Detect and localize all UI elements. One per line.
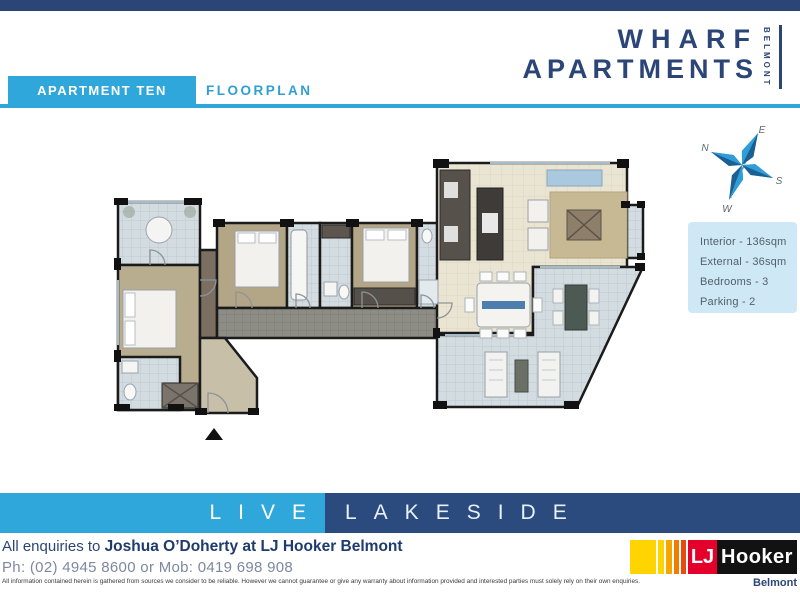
summary-info-box: Interior - 136sqm External - 36sqm Bedro…: [688, 222, 797, 313]
dining-chair: [514, 329, 526, 338]
logo-yellow-block: [630, 540, 656, 574]
room-hallway: [217, 308, 440, 338]
dining-chair: [465, 298, 474, 312]
wardrobe: [354, 288, 415, 305]
floorplan-label: FLOORPLAN: [206, 83, 313, 98]
dining-chair: [497, 272, 509, 281]
compass-label-west: W: [722, 204, 733, 214]
room-balcony-east-nook: [627, 205, 643, 258]
dining-chair: [480, 329, 492, 338]
vanity: [122, 361, 138, 373]
pillow: [125, 293, 135, 317]
toilet: [124, 384, 136, 400]
lj-hooker-logo: LJ Hooker: [630, 540, 797, 574]
brand-wordmark-line2: APARTMENTS: [523, 54, 759, 85]
appliance: [444, 226, 458, 242]
logo-lj-block: LJ: [688, 540, 717, 574]
compass-label-south: S: [776, 176, 783, 187]
toilet: [339, 285, 349, 299]
banner-lakeside-segment: LAKESIDE: [325, 493, 800, 533]
pillow: [259, 233, 276, 243]
enquiries-line: All enquiries to Joshua O’Doherty at LJ …: [2, 538, 403, 556]
plant: [123, 206, 135, 218]
toilet: [422, 229, 432, 243]
appliance: [444, 182, 458, 198]
plant: [184, 206, 196, 218]
compass-label-north: N: [701, 143, 709, 154]
table-runner: [482, 301, 525, 309]
summary-parking: Parking - 2: [700, 292, 797, 312]
outdoor-chair: [553, 311, 563, 325]
pillow: [388, 230, 406, 240]
outdoor-chair: [589, 311, 599, 325]
sofa: [547, 170, 602, 186]
disclaimer-text: All information contained herein is gath…: [2, 578, 640, 585]
dining-chair: [533, 298, 542, 312]
summary-interior: Interior - 136sqm: [700, 232, 797, 252]
bathtub: [291, 230, 307, 300]
outdoor-table: [565, 285, 587, 330]
summary-external: External - 36sqm: [700, 252, 797, 272]
balcony-table: [146, 217, 172, 243]
dining-chair: [480, 272, 492, 281]
top-navy-bar: [0, 0, 800, 11]
pillow: [366, 230, 384, 240]
banner-live-segment: LIVE: [0, 493, 325, 533]
enquiries-prefix: All enquiries to: [2, 538, 100, 555]
phone-line: Ph: (02) 4945 8600 or Mob: 0419 698 908: [2, 559, 293, 576]
brand-vertical-rule: [779, 25, 782, 89]
brand-vertical-belmont: BELMONT: [762, 27, 771, 89]
armchair: [528, 228, 548, 250]
laundry-bench: [322, 225, 350, 238]
apartment-tab-label: APARTMENT TEN: [37, 83, 167, 98]
pillow: [238, 233, 255, 243]
shower: [419, 280, 438, 304]
outdoor-chair: [553, 289, 563, 303]
header-divider-rule: [0, 104, 800, 108]
banner-lakeside-text: LAKESIDE: [345, 501, 584, 525]
logo-hooker-block: Hooker: [717, 540, 797, 574]
compass-rose: E N S W: [693, 118, 789, 214]
dining-chair: [497, 329, 509, 338]
logo-stripe: [656, 540, 664, 574]
live-lakeside-banner: LIVE LAKESIDE: [0, 493, 800, 533]
planter: [515, 360, 528, 392]
logo-stripe: [664, 540, 672, 574]
banner-live-text: LIVE: [209, 501, 323, 525]
brand-wordmark-line1: WHARF: [618, 24, 758, 55]
agent-name: Joshua O’Doherty at LJ Hooker Belmont: [105, 538, 403, 555]
entry-marker-triangle: [205, 428, 223, 440]
compass-label-east: E: [759, 125, 766, 136]
outdoor-chair: [589, 289, 599, 303]
compass-arm-east: [742, 133, 758, 165]
office-name: Belmont: [753, 577, 797, 589]
floorplan-image: [50, 130, 700, 450]
sun-lounger: [538, 352, 560, 397]
sink: [482, 213, 498, 233]
armchair: [528, 200, 548, 222]
dining-chair: [514, 272, 526, 281]
logo-stripe: [672, 540, 679, 574]
pillow: [125, 321, 135, 345]
washer: [324, 282, 337, 296]
sun-lounger: [485, 352, 507, 397]
apartment-tab: APARTMENT TEN: [8, 76, 196, 104]
summary-bedrooms: Bedrooms - 3: [700, 272, 797, 292]
logo-stripe: [679, 540, 688, 574]
